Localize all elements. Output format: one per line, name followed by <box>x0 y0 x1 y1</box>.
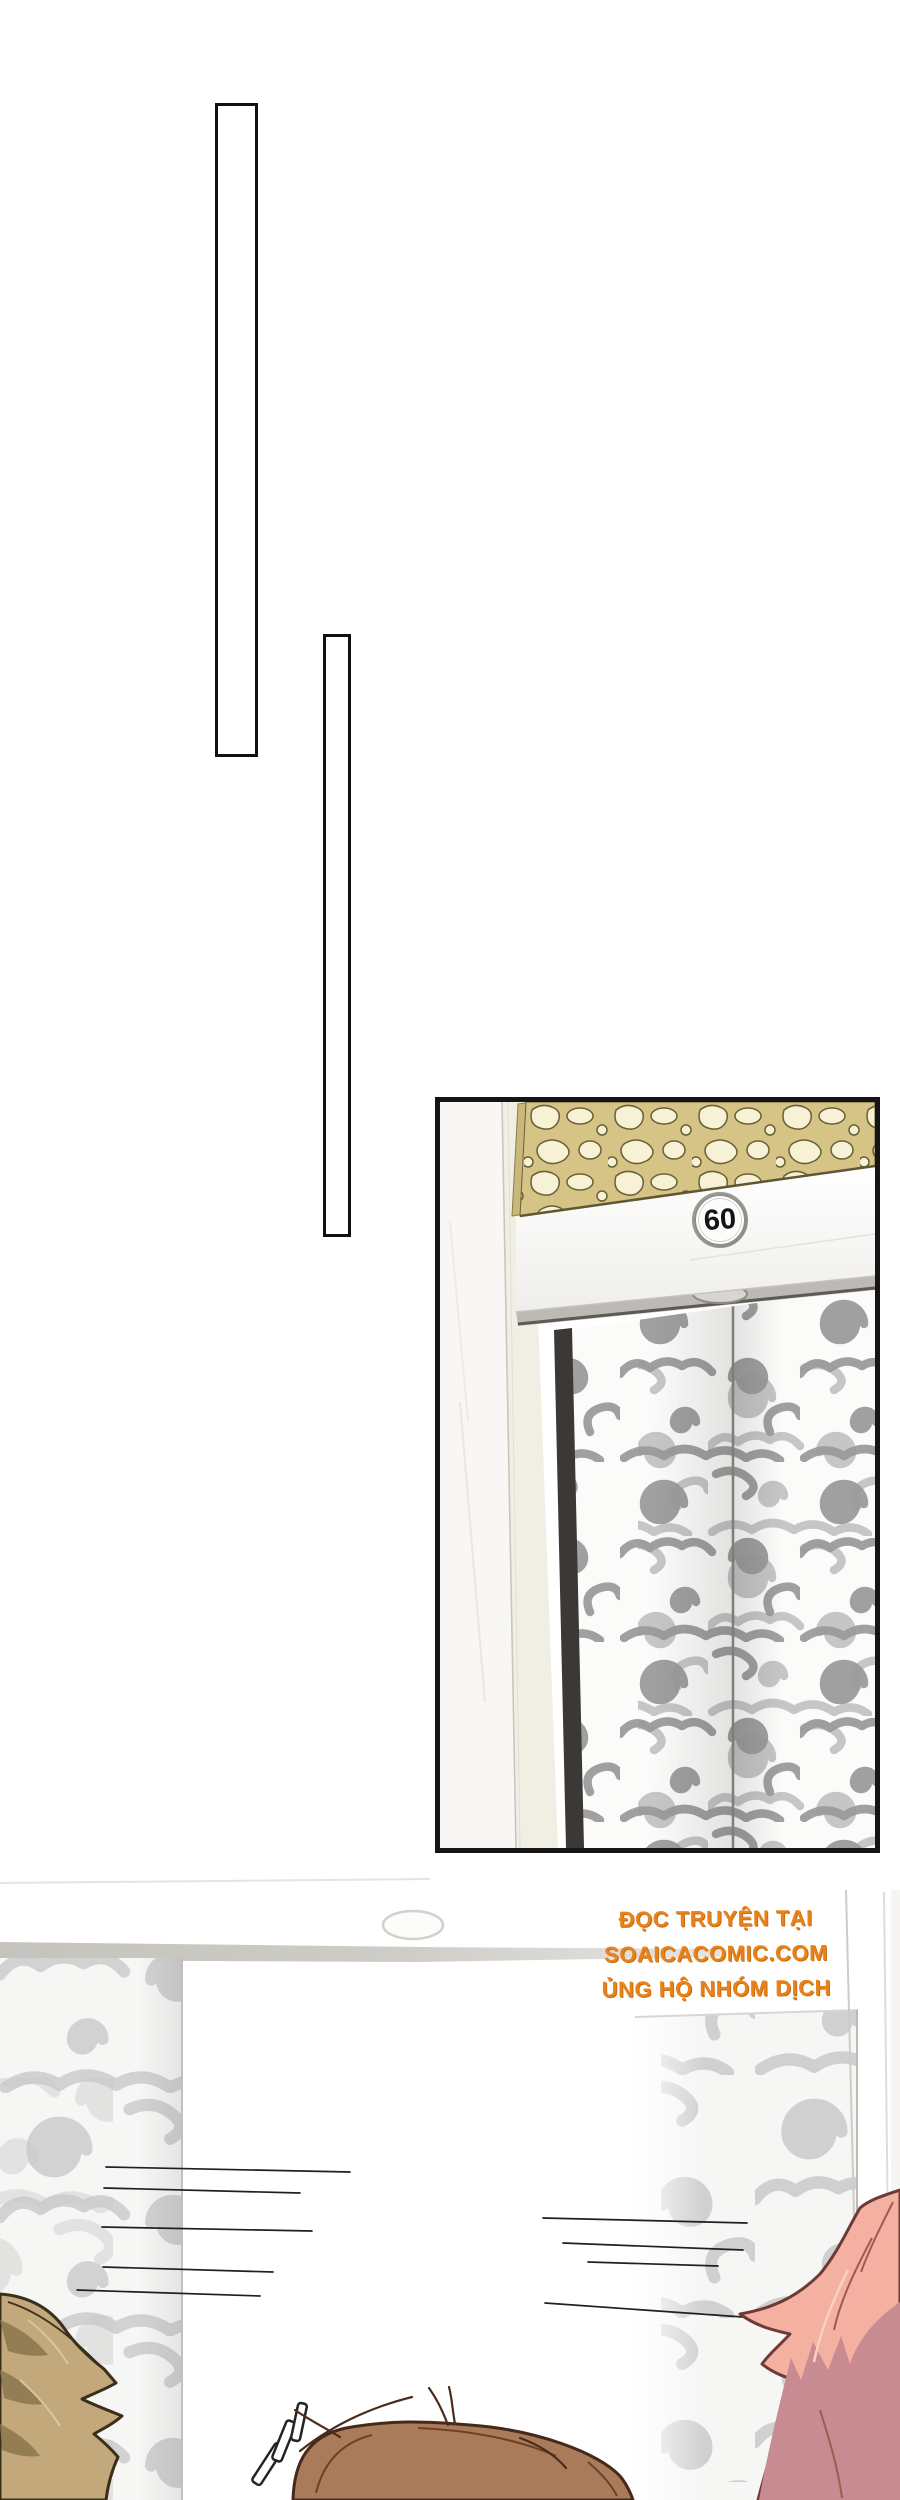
elevator-panel-art <box>440 1102 875 1848</box>
decor-bar-1 <box>215 103 258 757</box>
credits-line-2: SOAICACOMIC.COM <box>566 1935 866 1973</box>
translator-credits: ĐỌC TRUYỆN TẠI SOAICACOMIC.COM ỦNG HỘ NH… <box>566 1900 867 2008</box>
decor-bar-2 <box>323 634 351 1237</box>
floor-number: 60 <box>703 1203 737 1237</box>
elevator-doors <box>550 1282 875 1848</box>
elevator-panel: 60 <box>435 1097 880 1853</box>
credits-line-3: ỦNG HỘ NHÓM DỊCH <box>566 1970 866 2008</box>
credits-line-1: ĐỌC TRUYỆN TẠI <box>566 1900 866 1938</box>
comic-page: 60 <box>0 0 900 2500</box>
ceiling-light <box>383 1911 443 1939</box>
